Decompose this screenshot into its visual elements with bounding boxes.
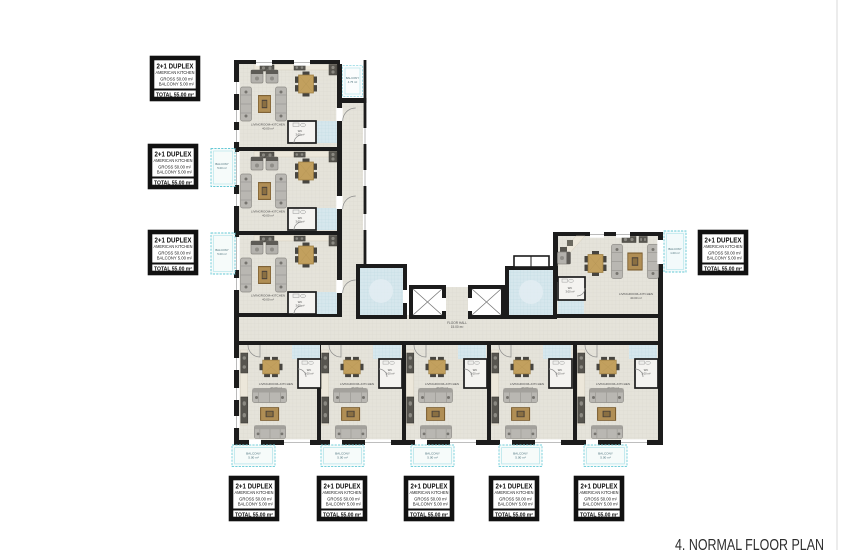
svg-text:1.00 m²: 1.00 m² (670, 251, 680, 255)
svg-text:5.00 m²: 5.00 m² (217, 166, 227, 170)
svg-text:4. NORMAL FLOOR PLAN: 4. NORMAL FLOOR PLAN (675, 537, 824, 550)
svg-text:40.00 m²: 40.00 m² (630, 296, 642, 300)
svg-text:WC: WC (568, 286, 573, 290)
svg-text:15.00 m²: 15.00 m² (451, 325, 464, 329)
svg-text:3.00 m²: 3.00 m² (565, 290, 574, 294)
svg-text:5.00 m²: 5.00 m² (217, 252, 227, 256)
svg-text:4.75 m²: 4.75 m² (348, 80, 358, 84)
